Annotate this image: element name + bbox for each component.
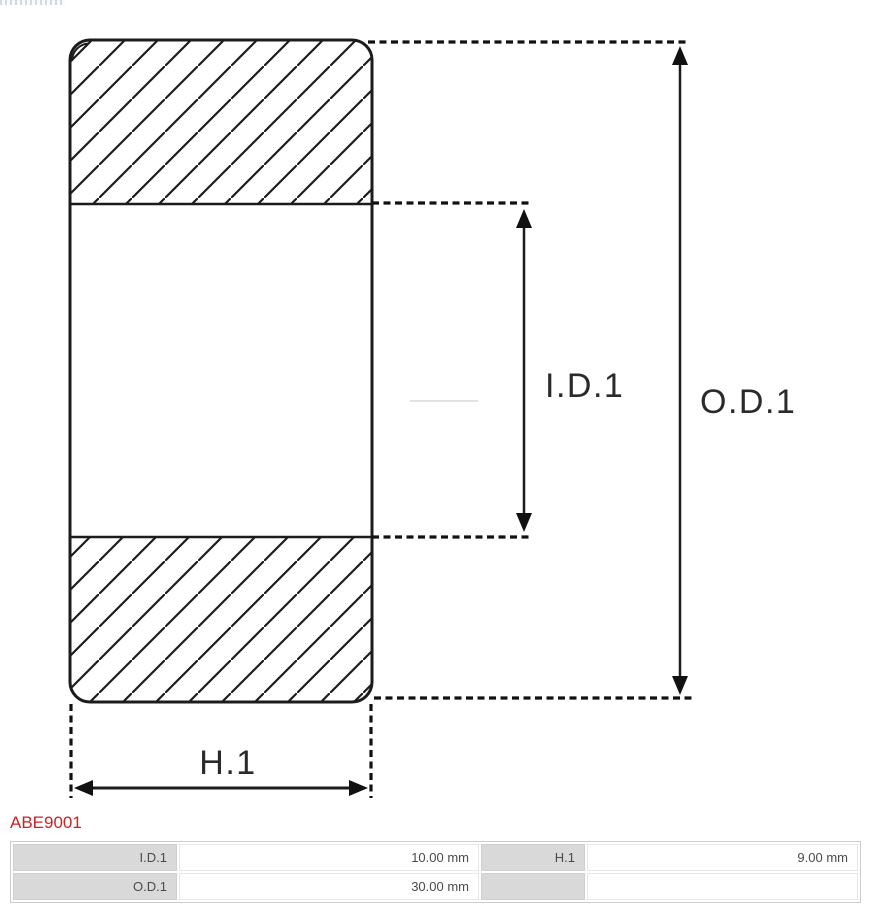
spec-value-h: 9.00 mm	[587, 844, 858, 871]
hatch-band-top	[70, 40, 372, 204]
spec-value-od: 30.00 mm	[179, 873, 479, 900]
part-number: ABE9001	[10, 812, 82, 834]
product-diagram-page: { "window": { "background": "#ffffff" },…	[0, 0, 871, 913]
spec-label-empty	[481, 873, 585, 900]
spec-label-id: I.D.1	[13, 844, 177, 871]
spec-table-row: I.D.1 10.00 mm H.1 9.00 mm	[13, 844, 858, 871]
h-dimension-arrow	[74, 780, 368, 796]
bearing-diagram: I.D.1 O.D.1 H.1	[0, 0, 871, 812]
spec-value-id: 10.00 mm	[179, 844, 479, 871]
id-dimension-arrow	[516, 209, 532, 532]
id-dimension-label: I.D.1	[545, 367, 624, 405]
od-dimension-arrow	[672, 46, 688, 695]
hatch-band-bottom	[70, 537, 372, 702]
spec-table: I.D.1 10.00 mm H.1 9.00 mm O.D.1 30.00 m…	[10, 841, 861, 903]
spec-table-row: O.D.1 30.00 mm	[13, 873, 858, 900]
bearing-diagram-svg: I.D.1 O.D.1 H.1	[0, 0, 871, 812]
spec-label-h: H.1	[481, 844, 585, 871]
hatch-bands	[70, 40, 372, 702]
od-dimension-label: O.D.1	[700, 383, 796, 421]
spec-value-empty	[587, 873, 858, 900]
h-dimension-label: H.1	[199, 744, 256, 782]
spec-label-od: O.D.1	[13, 873, 177, 900]
